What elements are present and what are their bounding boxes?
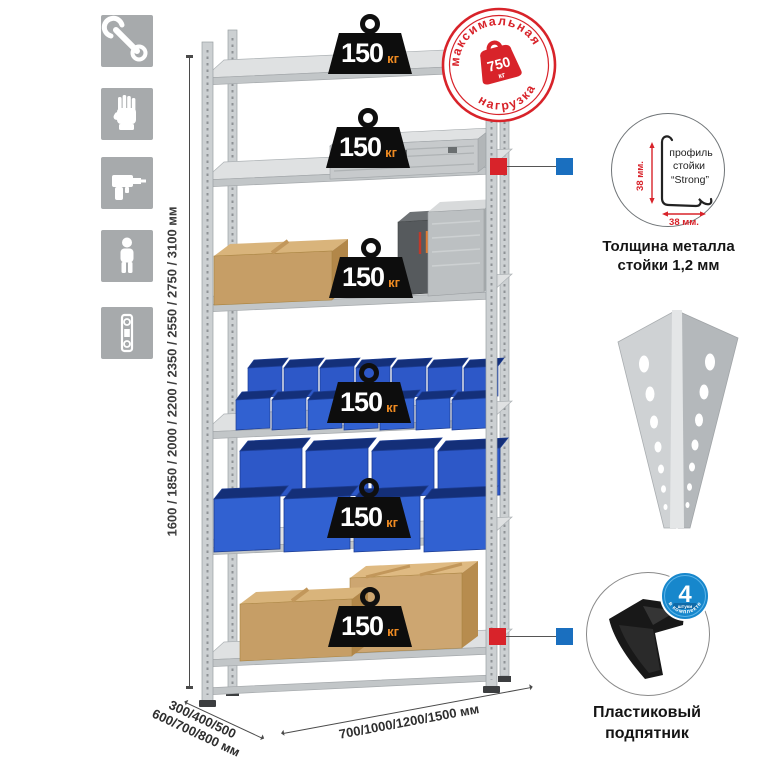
profile-label-1: профиль (669, 147, 713, 159)
weight-handle-icon (360, 14, 380, 34)
shelf-load-unit: кг (388, 275, 400, 290)
shelf-load-value: 150 (340, 387, 382, 418)
shelf-load-value: 150 (341, 38, 383, 69)
foot-count-badge: 4 штуки в комплекте (659, 570, 711, 622)
max-load-stamp: максимальная нагрузка 750 кг (440, 6, 558, 124)
post-profile-drawing: 38 мм. 38 мм. профиль стойки “Strong” (612, 114, 723, 225)
shelf-load-unit: кг (387, 624, 399, 639)
weight-handle-icon (360, 587, 380, 607)
shelf-load-unit: кг (386, 400, 398, 415)
foot-callout-marker-red (489, 628, 506, 645)
shelf-load-badge: 150 кг (327, 376, 411, 423)
weight-handle-icon (359, 478, 379, 498)
profile-vertical-dim-line (649, 142, 654, 204)
profile-callout-marker-blue (556, 158, 573, 175)
cardboard-box (214, 239, 348, 305)
shelf-load-badge: 150 кг (327, 491, 411, 538)
shelf-load-badge: 150 кг (326, 121, 410, 168)
shelf-load-value: 150 (339, 132, 381, 163)
shelf-load-value: 150 (341, 611, 383, 642)
foot-count-badge-graphic: 4 штуки в комплекте (659, 570, 711, 622)
post-profile-detail: 38 мм. 38 мм. профиль стойки “Strong” (611, 113, 725, 227)
shelf-load-value: 150 (342, 262, 384, 293)
weight-handle-icon (361, 238, 381, 258)
shelf-load-unit: кг (386, 515, 398, 530)
profile-vertical-dim-label: 38 мм. (635, 161, 646, 191)
shelf-load-value: 150 (340, 502, 382, 533)
profile-horizontal-dim-label: 38 мм. (669, 217, 699, 225)
foot-callout-marker-blue (556, 628, 573, 645)
shelf-load-badge: 150 кг (329, 251, 413, 298)
weight-handle-icon (359, 363, 379, 383)
weight-handle-icon (358, 108, 378, 128)
shelf-load-badge: 150 кг (328, 27, 412, 74)
shelf-load-unit: кг (387, 51, 399, 66)
profile-callout-marker-red (490, 158, 507, 175)
profile-label-2: стойки (673, 160, 705, 172)
profile-horizontal-dim-line (662, 211, 706, 216)
profile-label-3: “Strong” (671, 174, 709, 186)
shelf-load-badge: 150 кг (328, 600, 412, 647)
shelf-load-unit: кг (385, 145, 397, 160)
max-load-stamp-graphic: максимальная нагрузка 750 кг (440, 6, 558, 124)
